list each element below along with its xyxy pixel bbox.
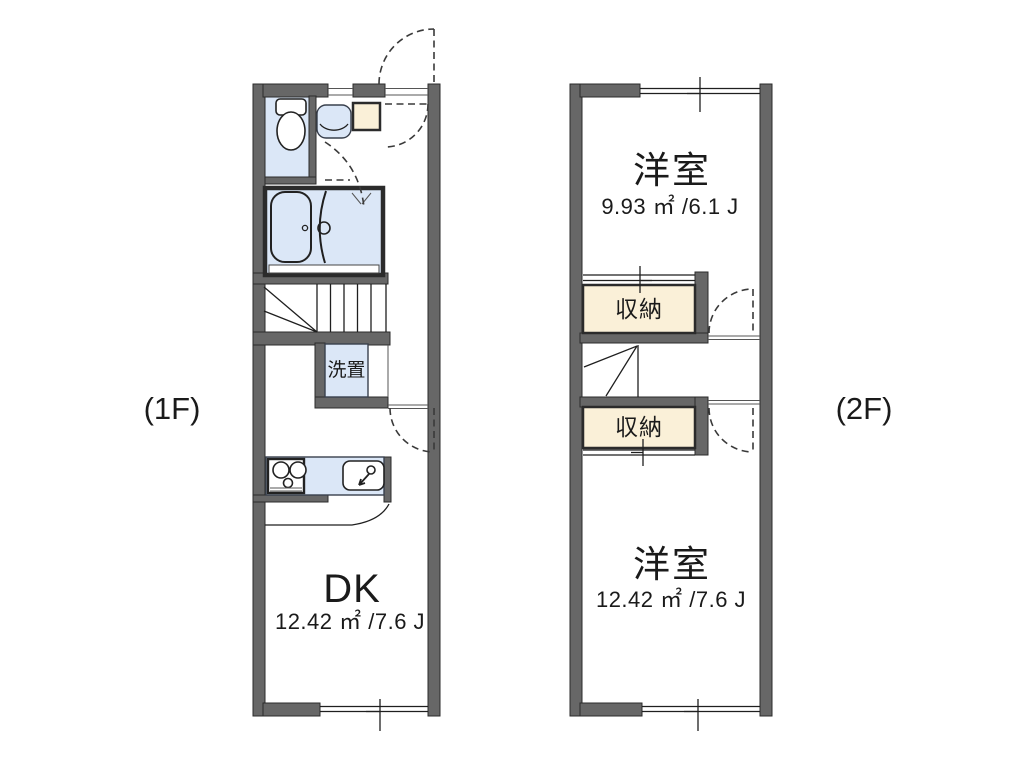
window-small-1f xyxy=(328,89,353,96)
wall-bottom-1f xyxy=(263,703,320,716)
stove-fixture xyxy=(268,459,306,493)
window-room-bottom xyxy=(642,699,760,731)
dk-door-threshold xyxy=(388,405,428,409)
room-top-door-swing xyxy=(709,289,753,333)
room-area-2f-bottom: 12.42 ㎡ /7.6 J xyxy=(576,584,766,616)
washer-space-label: 洗置 xyxy=(325,344,368,397)
window-dk xyxy=(320,699,428,731)
wall-right-2f xyxy=(760,84,772,716)
counter-edge-line xyxy=(265,504,389,525)
room-name-dk: DK xyxy=(302,567,402,611)
wall-top-1f xyxy=(353,84,385,97)
wall-toilet-right xyxy=(309,96,316,184)
wall-closet2-top xyxy=(580,397,708,407)
dk-door-swing xyxy=(390,408,434,452)
entrance-threshold xyxy=(385,89,428,96)
room-bottom-door-threshold xyxy=(708,401,760,405)
wall-top-1f xyxy=(263,84,328,97)
window-room-top xyxy=(640,77,760,112)
bathtub-fixture xyxy=(265,188,383,275)
room-area-2f-top: 9.93 ㎡ /6.1 J xyxy=(575,191,765,223)
wall-closet2-right xyxy=(695,397,708,455)
staircase-2f xyxy=(584,345,638,397)
wall-kitchen-stub xyxy=(253,495,328,502)
room-name-2f-bottom: 洋室 xyxy=(597,542,747,586)
wall-closet1-bottom xyxy=(580,333,708,343)
wall-bottom-2f xyxy=(580,703,642,716)
entrance-cabinet xyxy=(353,103,380,130)
room-top-door-threshold xyxy=(708,336,760,340)
room-name-2f-top: 洋室 xyxy=(597,148,747,192)
closet-bottom-label: 収納 xyxy=(583,407,695,448)
entrance-door-swing xyxy=(379,29,434,84)
room-area-dk: 12.42 ㎡ /7.6 J xyxy=(255,606,445,638)
kitchen-sink-fixture xyxy=(343,461,384,490)
wall-top-2f xyxy=(580,84,640,97)
wash-basin-fixture xyxy=(317,105,351,138)
counter-end-wall xyxy=(384,457,391,502)
kitchen-counter xyxy=(265,457,389,525)
floor-label-1f: (1F) xyxy=(117,386,227,430)
wall-closet1-right xyxy=(695,272,708,333)
wall-washer-bottom xyxy=(315,397,388,408)
wall-toilet-bottom xyxy=(265,177,316,184)
closet-top-label: 収納 xyxy=(583,285,695,333)
toilet-fixture xyxy=(276,99,306,150)
cabinet-door-swing xyxy=(385,104,428,147)
room-bottom-door-swing xyxy=(709,408,753,452)
floor-label-2f: (2F) xyxy=(809,386,919,430)
floorplan-page: (1F) (2F) DK 12.42 ㎡ /7.6 J 洗置 洋室 9.93 ㎡… xyxy=(0,0,1016,772)
